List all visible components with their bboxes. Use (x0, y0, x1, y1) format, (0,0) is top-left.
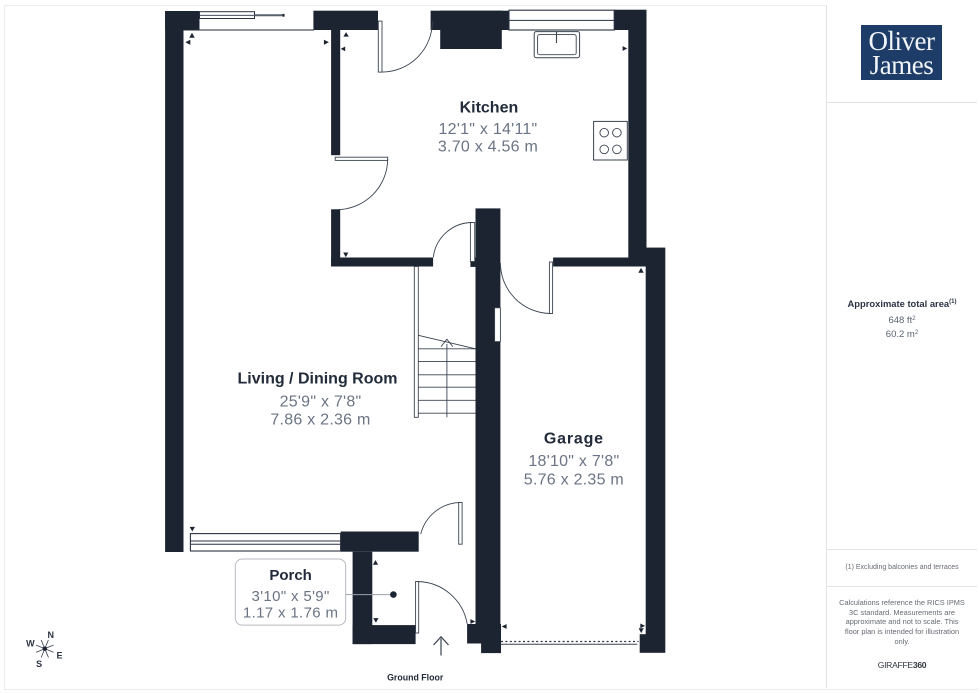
svg-text:Garage: Garage (544, 431, 604, 448)
svg-text:Porch: Porch (269, 567, 312, 584)
svg-text:Kitchen: Kitchen (460, 100, 519, 117)
svg-text:Ground Floor: Ground Floor (387, 672, 444, 682)
svg-text:25'9" x 7'8": 25'9" x 7'8" (280, 394, 362, 411)
svg-text:5.76 x 2.35 m: 5.76 x 2.35 m (524, 471, 624, 488)
svg-text:S: S (36, 659, 42, 669)
svg-text:12'1" x 14'11": 12'1" x 14'11" (439, 121, 538, 138)
svg-text:N: N (47, 630, 54, 640)
svg-text:1.17 x 1.76 m: 1.17 x 1.76 m (243, 605, 338, 622)
svg-text:W: W (26, 639, 35, 649)
svg-text:3.70 x 4.56 m: 3.70 x 4.56 m (438, 139, 538, 156)
svg-text:18'10" x 7'8": 18'10" x 7'8" (528, 453, 619, 470)
svg-text:E: E (56, 651, 62, 661)
svg-text:7.86 x 2.36 m: 7.86 x 2.36 m (270, 411, 370, 428)
svg-text:3'10" x 5'9": 3'10" x 5'9" (252, 588, 330, 605)
svg-text:Living / Dining Room: Living / Dining Room (238, 371, 398, 388)
